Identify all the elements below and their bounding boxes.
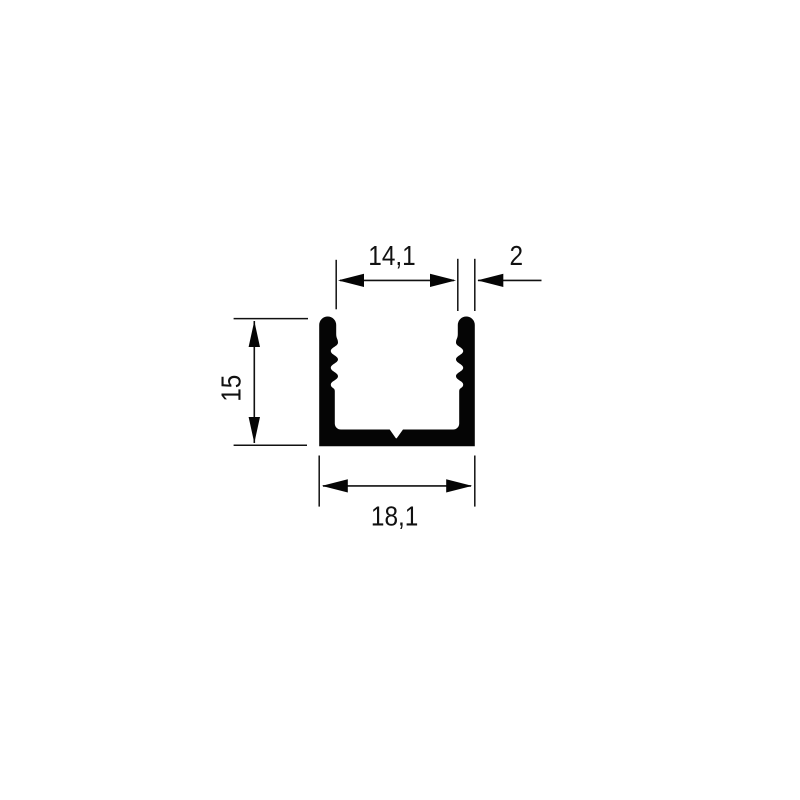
svg-text:15: 15: [215, 375, 247, 402]
svg-text:14,1: 14,1: [368, 239, 415, 271]
svg-text:2: 2: [510, 239, 524, 271]
svg-text:18,1: 18,1: [371, 500, 418, 532]
